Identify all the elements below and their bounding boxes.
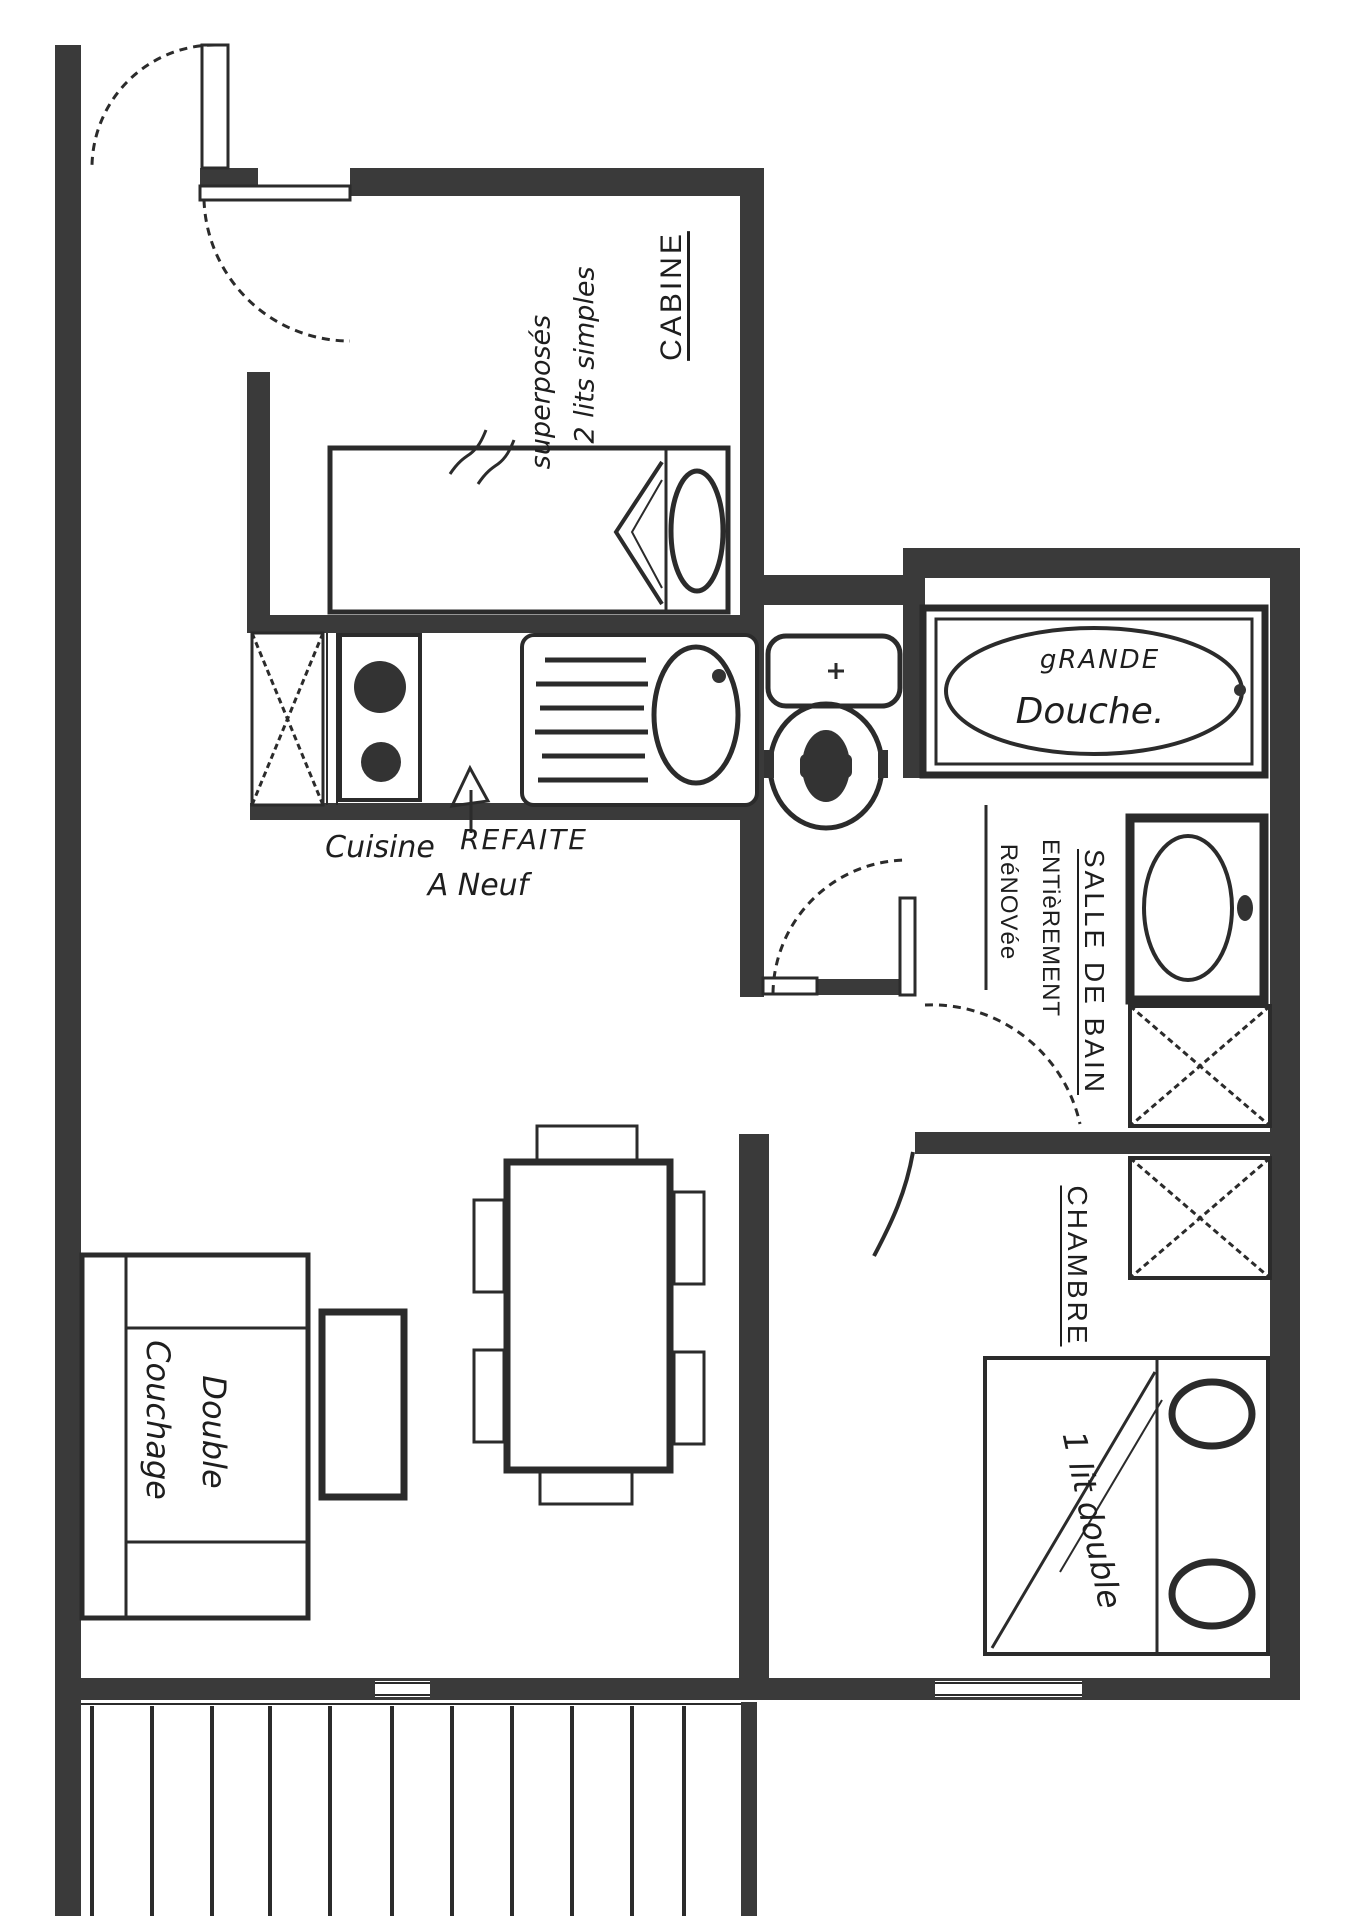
closet-upper-x2: [1130, 1006, 1270, 1126]
balcony-right-post: [741, 1702, 757, 1916]
bedroom: [985, 1358, 1268, 1654]
toilet-tab-right: [878, 750, 888, 778]
bunk-bed-outline: [330, 448, 728, 612]
label-shower-line2: Douche.: [1016, 694, 1165, 730]
bedroom-door-leaf: [874, 1152, 913, 1256]
bathroom-door-leaf: [900, 898, 915, 995]
dining-table: [507, 1162, 670, 1470]
label-sofa-line2: Double: [198, 1375, 230, 1488]
cabine-door-leaf: [200, 186, 350, 200]
balcony: [81, 1704, 741, 1916]
washbasin-tap: [1237, 895, 1253, 921]
wall-bathroom-top-left: [757, 575, 909, 605]
label-bathroom-line1: SALLE DE BAIN: [1080, 849, 1108, 1095]
shower-drain-dot: [1234, 684, 1246, 696]
label-kitchen-word1: Cuisine: [325, 833, 435, 863]
sink-faucet-dot: [712, 669, 726, 683]
wall-right-outer: [1270, 548, 1300, 1700]
wall-left-outer: [55, 45, 81, 1916]
wall-bedroom-top: [915, 1132, 1300, 1154]
label-kitchen-line2: A Neuf: [428, 871, 529, 901]
chair-right-2: [674, 1352, 704, 1444]
floor-plan: CABINE 2 lits simples superposés Cuisine…: [0, 0, 1357, 1920]
label-bunk-line2: superposés: [528, 315, 555, 469]
chair-right-1: [674, 1192, 704, 1284]
label-sofa-line1: Couchage: [142, 1340, 174, 1500]
label-bathroom-line2: ENTièREMENT: [1038, 839, 1062, 1017]
label-bathroom-line3: RéNOVée: [996, 844, 1020, 960]
cabine-door-arc: [204, 200, 350, 341]
bathroom-door-arc: [773, 860, 906, 993]
wall-cabine-top-right: [350, 168, 763, 196]
label-bedroom: CHAMBRE: [1063, 1185, 1091, 1346]
chair-left-2: [474, 1350, 504, 1442]
wall-kitchen-top: [247, 615, 757, 633]
washbasin-bowl: [1144, 836, 1232, 980]
coffee-table: [322, 1312, 404, 1497]
bedroom-door-arc: [925, 1005, 1080, 1124]
bathroom-doorway-sill: [763, 978, 817, 994]
chair-top: [537, 1126, 637, 1160]
wall-bathroom-top-right: [903, 548, 1300, 578]
toilet-flush-bar: [800, 754, 852, 778]
balcony-balusters: [92, 1706, 684, 1916]
stove-burner-small: [361, 742, 401, 782]
chair-left-1: [474, 1200, 504, 1292]
stove-burner-large: [354, 661, 406, 713]
entry-door-arc: [92, 45, 215, 165]
double-bed-outline: [985, 1358, 1268, 1654]
label-bunk-line1: 2 lits simples: [572, 266, 599, 443]
chair-bottom: [540, 1472, 632, 1504]
toilet-tab-left: [764, 750, 774, 778]
wall-bottom-outer: [55, 1678, 1300, 1700]
label-shower-line1: gRANDE: [1040, 647, 1160, 673]
label-cabine: CABINE: [657, 231, 687, 361]
closet-lower-x2: [1130, 1158, 1270, 1278]
label-kitchen-word2: REFAITE: [460, 826, 588, 854]
wall-bedroom-left: [739, 1134, 769, 1700]
wall-cabine-left: [247, 372, 270, 632]
entry-door-leaf: [202, 45, 228, 168]
